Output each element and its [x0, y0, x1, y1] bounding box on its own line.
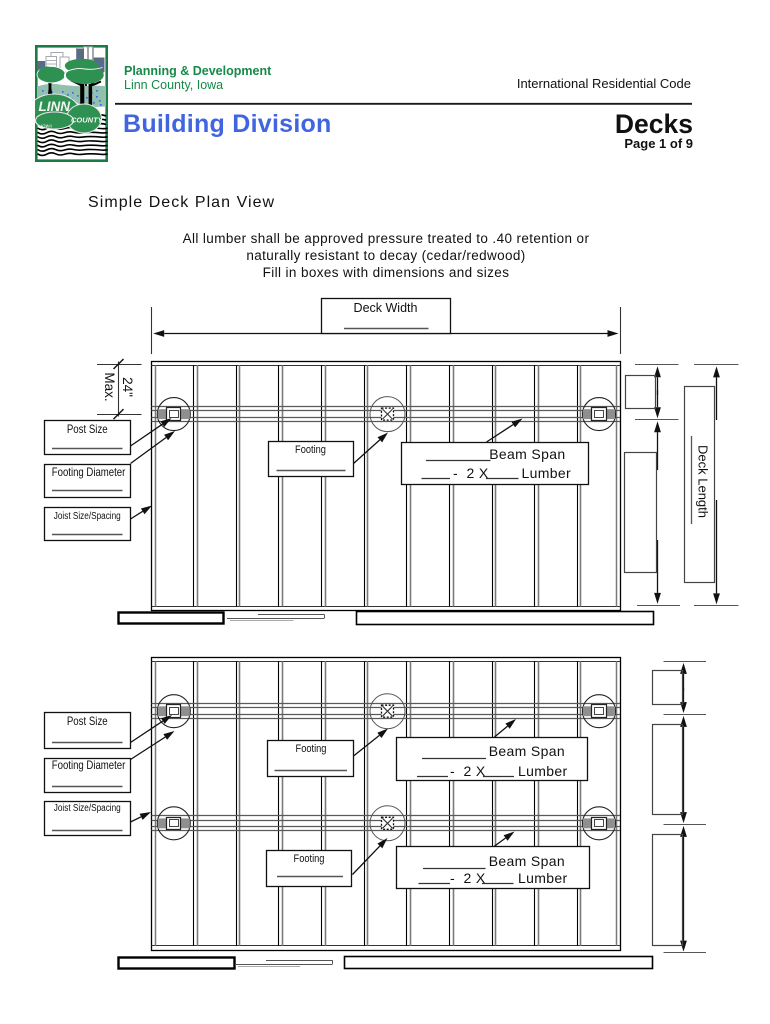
svg-text:LINN: LINN: [39, 99, 71, 114]
svg-text:IOWA: IOWA: [41, 124, 52, 129]
svg-text:COUNTY: COUNTY: [71, 116, 104, 125]
